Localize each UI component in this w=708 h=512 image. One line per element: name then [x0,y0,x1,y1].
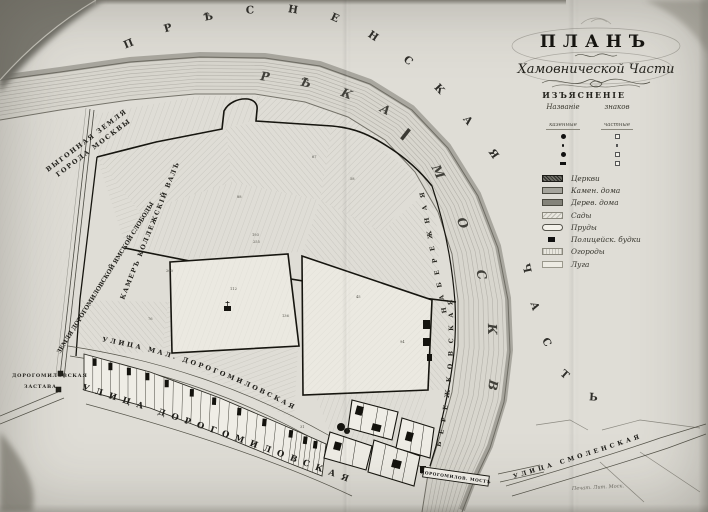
pond-swatch-icon [542,224,563,231]
zastava-label-line1: ДОРОГОМИЛОВСКАЯ [12,373,88,379]
zastava-label-line2: ЗАСТАВА [24,384,57,390]
meadow-swatch-icon [542,261,563,268]
flourish-loops-icon [505,16,687,94]
legend-item-meadows: Луга [536,258,676,270]
legend-item-churches: Церкви [536,172,676,184]
chapel-private-icon [616,144,619,147]
parcel-number: 112 [230,287,237,291]
church-swatch-icon [542,175,563,182]
legend-item-label: Камен. дома [571,186,620,195]
parcel-quad-left-hatch [170,254,299,353]
legend-item-label: Церкви [571,174,600,183]
wooden-house-swatch-icon [542,199,563,206]
legend-item-police-booths: Полицейск. будки [536,233,676,245]
parcel-number: 76 [148,317,153,321]
parcel-number: 88 [237,195,242,199]
legend-item-wooden-houses: Дерев. дома [536,197,676,209]
vegetable-garden-swatch-icon [542,248,563,255]
legend: ИЗЪЯСНЕНІЕ Названіе казенные знаков част… [536,90,676,270]
police-booth-swatch-icon [548,237,555,242]
legend-item-label: Луга [571,260,589,269]
lot-building [239,408,240,415]
title-cartouche: ПЛАНЪ Хамовнической Части [505,16,687,94]
parcel-number: 45 [356,295,361,299]
house-private-icon [615,161,620,166]
lot-building [290,430,291,437]
legend-items: Церкви Камен. дома Дерев. дома Сады Пруд… [536,172,676,270]
building-state-icon [561,152,566,157]
parcel-number: 200 [166,269,174,273]
legend-item-label: Полицейск. будки [571,235,641,244]
legend-column-headers: Названіе казенные знаков частные [536,103,644,130]
legend-symbol-grid [536,132,644,168]
garden-swatch-icon [542,212,563,219]
legend-item-stone-houses: Камен. дома [536,184,676,196]
legend-col-right-header: знаков [590,103,644,111]
legend-item-label: Дерев. дома [571,198,619,207]
legend-item-label: Огороды [571,247,605,256]
parcel-number: 255 [253,240,261,244]
chapel-state-icon [562,144,564,146]
lot-building [315,441,316,448]
parcel-number: 136 [282,314,290,318]
house-state-icon [560,162,566,166]
building-private-icon [615,152,620,157]
parcel-number: 31 [300,425,305,429]
legend-item-ponds: Пруды [536,221,676,233]
legend-header: ИЗЪЯСНЕНІЕ [536,90,632,100]
legend-item-label: Пруды [571,223,597,232]
legend-col-left-sub: казенные [546,122,580,130]
church-state-icon [561,134,566,139]
stone-house-swatch-icon [542,187,563,194]
legend-col-left-header: Названіе [536,103,590,111]
church-private-icon [615,134,620,139]
parcel-number: 67 [312,155,317,159]
parcel-number: 94 [400,340,405,344]
map-scan: ДОРОГОМИЛОВ. МОСТЪ 193255881369467200457… [0,0,708,512]
legend-item-vegetable-gardens: Огороды [536,246,676,258]
legend-item-label: Сады [571,211,592,220]
lot-building [305,437,306,444]
lot-building [264,419,265,426]
map-title: ПЛАНЪ [505,32,687,52]
map-subtitle: Хамовнической Части [505,62,687,77]
legend-item-gardens: Сады [536,209,676,221]
legend-col-right-sub: частные [601,122,633,130]
parcel-number: 193 [252,233,260,237]
